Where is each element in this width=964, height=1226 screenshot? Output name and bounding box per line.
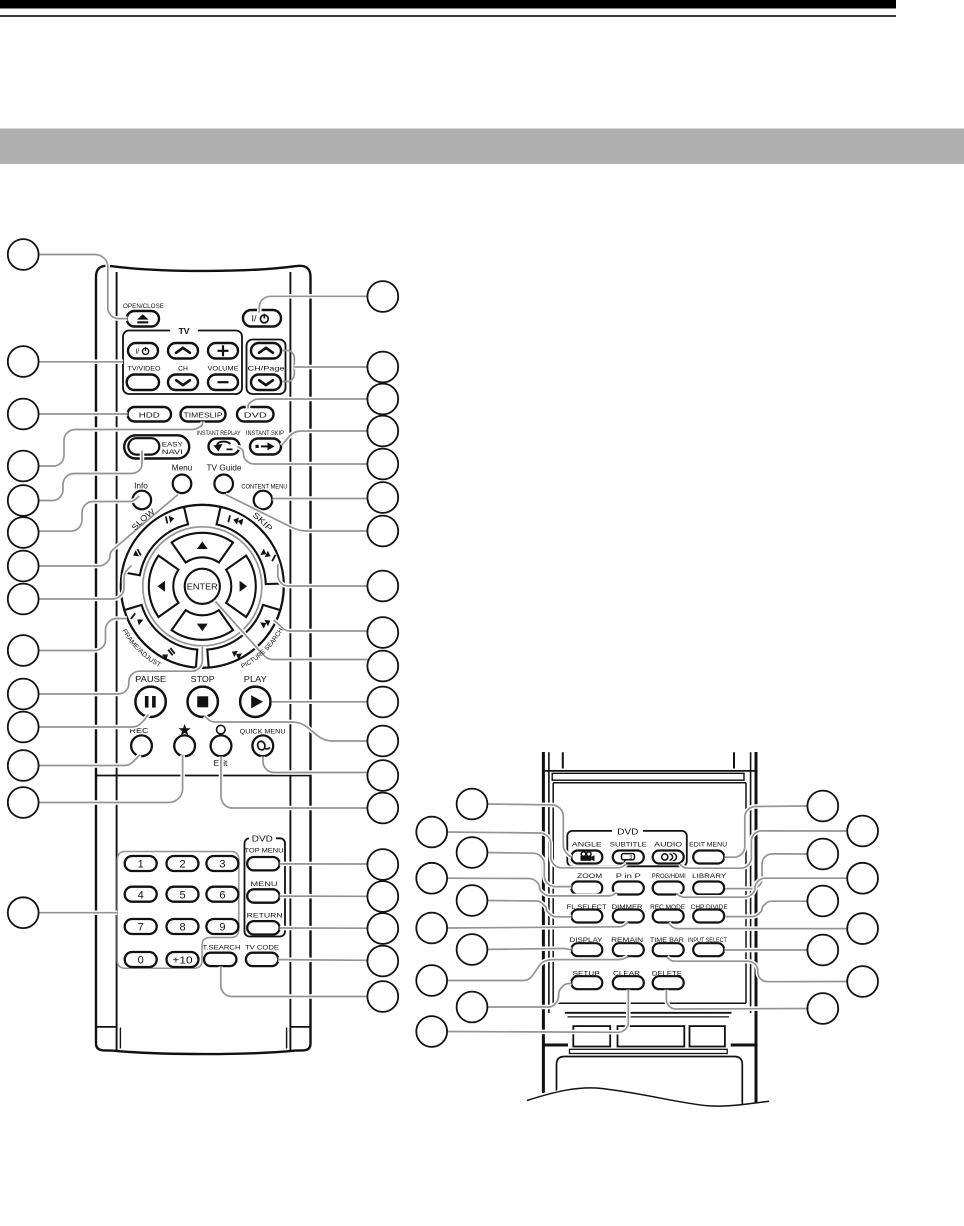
svg-text:PLAY: PLAY [244, 675, 268, 684]
svg-text:ANGLE: ANGLE [572, 842, 603, 849]
svg-text:AUDIO: AUDIO [654, 842, 682, 849]
svg-text:I/: I/ [135, 347, 139, 356]
svg-text:5: 5 [179, 889, 185, 901]
svg-text:4: 4 [138, 889, 144, 901]
svg-text:2: 2 [179, 859, 185, 871]
svg-text:P in P: P in P [616, 873, 642, 880]
svg-text:I/: I/ [252, 314, 258, 324]
svg-text:TOP MENU: TOP MENU [245, 847, 284, 854]
svg-text:TV Guide: TV Guide [207, 463, 242, 472]
svg-text:STOP: STOP [191, 675, 216, 684]
svg-text:6: 6 [219, 889, 225, 901]
svg-text:+10: +10 [173, 956, 194, 967]
svg-text:NAVI: NAVI [162, 449, 183, 456]
svg-text:MENU: MENU [251, 881, 278, 888]
svg-text:0: 0 [138, 955, 144, 967]
svg-text:DVD: DVD [252, 835, 273, 844]
svg-text:VOLUME: VOLUME [208, 366, 239, 373]
svg-text:CONTENT MENU: CONTENT MENU [241, 483, 287, 490]
svg-text:PAUSE: PAUSE [135, 675, 167, 684]
svg-text:HDD: HDD [139, 411, 160, 420]
svg-text:DVD: DVD [617, 827, 638, 836]
svg-text:Info: Info [134, 481, 148, 490]
svg-text:OPEN/CLOSE: OPEN/CLOSE [123, 303, 165, 310]
svg-text:8: 8 [179, 922, 185, 934]
svg-text:RETURN: RETURN [247, 912, 283, 919]
svg-text:INSTANT REPLAY: INSTANT REPLAY [197, 430, 241, 437]
svg-text:LIBRARY: LIBRARY [692, 873, 727, 880]
svg-text:ENTER: ENTER [187, 582, 218, 592]
svg-text:CH/Page: CH/Page [248, 365, 285, 372]
svg-text:TV: TV [179, 326, 190, 336]
svg-text:INSTANT SKIP: INSTANT SKIP [246, 430, 284, 437]
svg-text:9: 9 [219, 922, 225, 934]
svg-text:Menu: Menu [172, 463, 193, 472]
svg-text:1: 1 [138, 859, 144, 871]
svg-text:T.SEARCH: T.SEARCH [203, 944, 241, 951]
svg-text:SUBTITLE: SUBTITLE [610, 842, 648, 849]
svg-text:3: 3 [219, 859, 225, 871]
svg-text:TV/VIDEO: TV/VIDEO [128, 366, 161, 373]
svg-text:3: 3 [629, 855, 632, 861]
svg-text:TV CODE: TV CODE [245, 944, 280, 951]
svg-text:PROG/HDMI: PROG/HDMI [652, 873, 686, 880]
svg-text:EDIT MENU: EDIT MENU [689, 842, 727, 849]
svg-text:ZOOM: ZOOM [577, 873, 602, 880]
svg-text:DVD: DVD [244, 411, 267, 420]
svg-text:CH: CH [178, 366, 188, 373]
svg-text:EASY: EASY [162, 442, 184, 449]
svg-text:TIMESLIP: TIMESLIP [184, 413, 223, 420]
svg-text:7: 7 [138, 922, 144, 934]
